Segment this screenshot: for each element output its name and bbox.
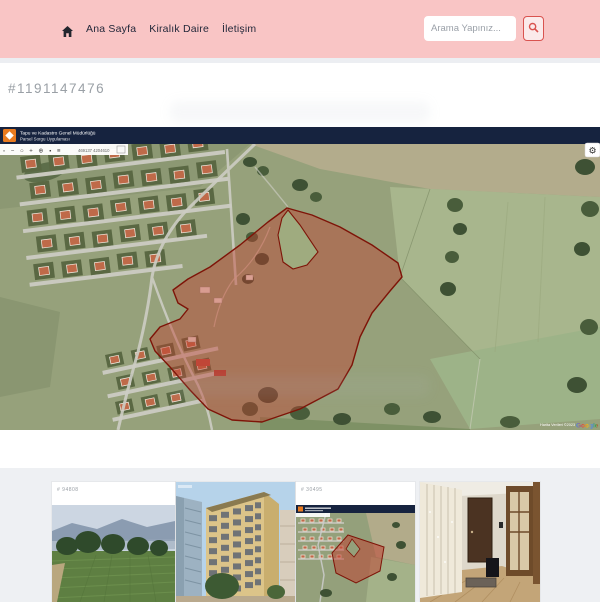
nav-item-rentals[interactable]: Kiralık Daire <box>149 23 209 35</box>
listing-id-title: #1191147476 <box>8 81 105 96</box>
home-icon[interactable] <box>62 24 73 35</box>
nav-item-contact[interactable]: İletişim <box>222 23 256 35</box>
thumbnail-card-building[interactable] <box>176 482 295 602</box>
listing-content: #1191147476 <box>0 58 600 468</box>
search-group <box>424 16 544 41</box>
tkgm-subtitle: Parsel Sorgu Uygulaması <box>20 137 70 142</box>
ghost-watermark-top <box>170 101 430 123</box>
search-input[interactable] <box>424 16 516 41</box>
building-photo <box>176 482 295 602</box>
thumbnail-card-field[interactable]: # 94808 <box>52 482 175 602</box>
thumbnail-strip: # 94808 <box>0 468 600 600</box>
nav-item-home[interactable]: Ana Sayfa <box>86 23 136 35</box>
map-toolbar-icons: ▫ − ○ + ⊕ ▪ ≡ <box>3 149 62 155</box>
search-button[interactable] <box>523 16 544 41</box>
gear-icon: ⚙ <box>588 146 596 156</box>
thumbnail-card-parcel-map[interactable]: # 30495 <box>296 482 415 602</box>
google-logo: Google <box>576 423 599 430</box>
thumbnail-id: # 30495 <box>301 487 323 493</box>
interior-photo <box>420 482 540 602</box>
field-photo <box>52 505 175 602</box>
main-nav: Ana Sayfa Kiralık Daire İletişim <box>62 0 256 58</box>
map-coordinates: 469137 4204610 <box>78 148 110 153</box>
map-toolbar[interactable]: ▫ − ○ + ⊕ ▪ ≡ 469137 4204610 <box>0 144 128 155</box>
parcel-map-photo <box>296 505 415 602</box>
search-icon <box>528 21 539 36</box>
ghost-watermark-bottom <box>170 375 430 397</box>
top-navigation-bar: Ana Sayfa Kiralık Daire İletişim <box>0 0 600 58</box>
tkgm-header-bar: Tapu ve Kadastro Genel Müdürlüğü Parsel … <box>0 127 600 144</box>
map-settings-button[interactable]: ⚙ <box>585 143 600 157</box>
attribution-text: Harita Verileri ©2023 <box>540 423 575 427</box>
thumbnail-id: # 94808 <box>57 487 79 493</box>
thumbnail-card-interior[interactable] <box>420 482 540 602</box>
